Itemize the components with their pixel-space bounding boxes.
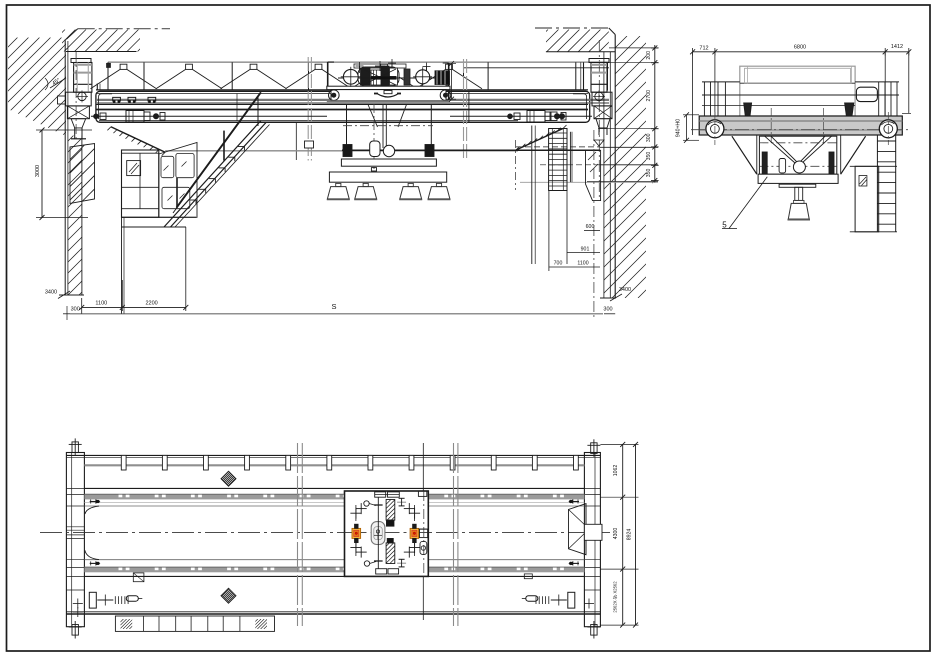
svg-text:2562X·轨·X2562: 2562X·轨·X2562: [612, 581, 619, 613]
svg-text:700: 700: [554, 261, 563, 267]
svg-text:1100: 1100: [577, 261, 588, 267]
svg-text:350: 350: [646, 168, 652, 177]
svg-text:2700: 2700: [646, 90, 652, 102]
svg-text:8924: 8924: [626, 529, 632, 541]
svg-text:940+H0: 940+H0: [676, 119, 682, 137]
svg-text:3000: 3000: [35, 165, 41, 177]
svg-text:4300: 4300: [613, 528, 619, 540]
svg-text:712: 712: [699, 46, 708, 52]
svg-text:1100: 1100: [95, 301, 107, 307]
svg-text:600: 600: [586, 224, 595, 230]
svg-text:1467: 1467: [446, 75, 452, 87]
svg-text:S: S: [331, 302, 336, 311]
svg-text:300: 300: [603, 307, 612, 313]
svg-text:6800: 6800: [794, 45, 806, 51]
svg-text:3400: 3400: [45, 290, 57, 296]
svg-text:300: 300: [646, 133, 652, 142]
svg-text:350: 350: [646, 152, 652, 161]
svg-text:300: 300: [71, 307, 80, 313]
svg-text:901: 901: [581, 247, 590, 253]
svg-text:200: 200: [646, 51, 652, 60]
svg-text:1412: 1412: [891, 44, 903, 50]
svg-text:1062: 1062: [613, 465, 619, 477]
svg-text:2200: 2200: [145, 301, 157, 307]
svg-text:3400: 3400: [619, 287, 631, 293]
